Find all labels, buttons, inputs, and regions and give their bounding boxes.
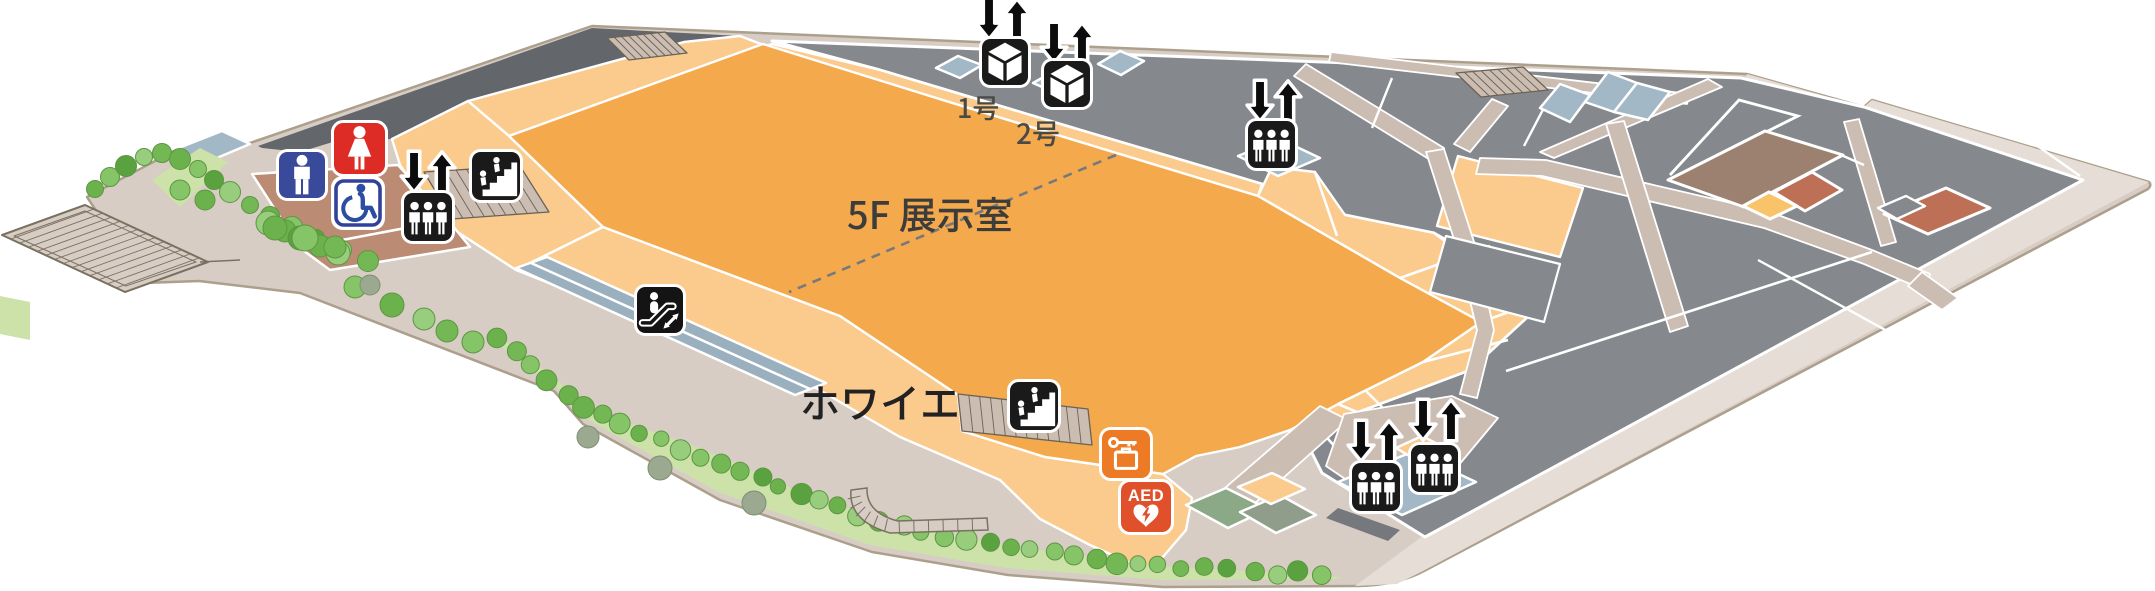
svg-text:AED: AED — [1128, 487, 1164, 505]
